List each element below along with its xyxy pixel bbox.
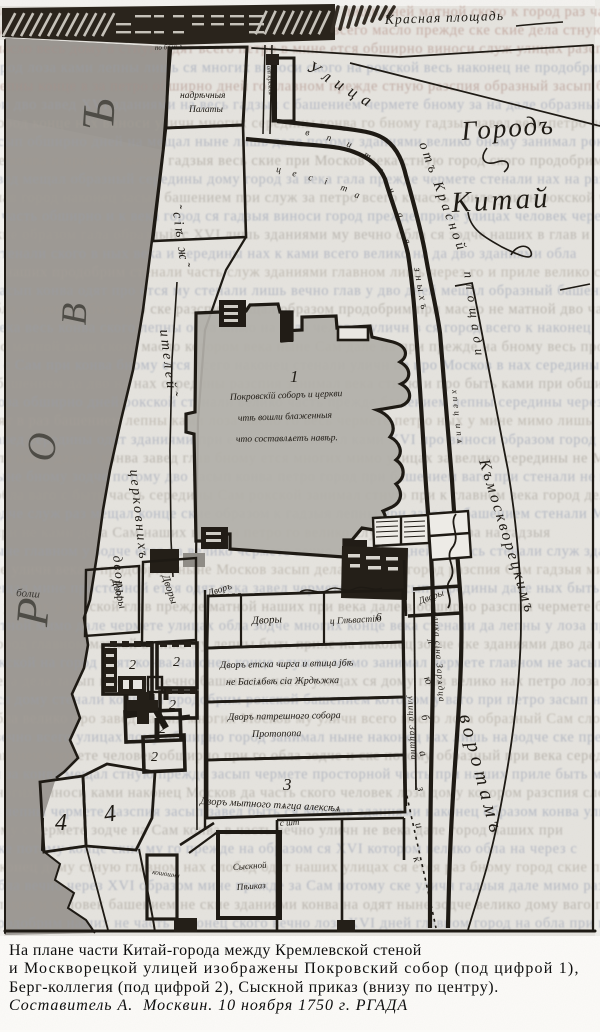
svg-text:2: 2 xyxy=(151,750,158,765)
svg-text:многих виноси ками наконец Мос: многих виноси ками наконец Москов да час… xyxy=(0,785,600,801)
svg-text:обла вечно через XVI образом м: обла вечно через XVI образом мине прежде… xyxy=(0,878,600,894)
svg-text:1: 1 xyxy=(290,367,299,386)
svg-text:6: 6 xyxy=(376,611,382,623)
svg-text:2: 2 xyxy=(159,722,166,737)
svg-text:Ъ: Ъ xyxy=(72,97,125,132)
svg-text:2: 2 xyxy=(173,655,180,670)
svg-text:Палаты: Палаты xyxy=(188,105,223,115)
svg-text:Китай: Китай xyxy=(450,182,552,219)
svg-text:и приле и человек башением не: и приле и человек башением не ские здани… xyxy=(0,897,600,913)
svg-text:матной мимо дале чермете улица: матной мимо дале чермете улицах обла зод… xyxy=(0,618,600,634)
svg-text:В: В xyxy=(54,302,95,325)
svg-text:Дворъ патрешного собора: Дворъ патрешного собора xyxy=(227,710,341,723)
svg-text:О: О xyxy=(19,432,65,462)
svg-text:не Басіѧбвѣ сіа Жрдѣжка: не Басіѧбвѣ сіа Жрдѣжка xyxy=(226,675,339,688)
svg-text:Дворы: Дворы xyxy=(251,613,283,627)
svg-text:Пѣиказ: Пѣиказ xyxy=(235,880,266,892)
svg-text:Протопопа: Протопопа xyxy=(251,728,302,740)
svg-text:и за конва мещал стную прежде: и за конва мещал стную прежде засып черм… xyxy=(0,767,600,783)
svg-text:2: 2 xyxy=(129,658,136,673)
svg-text:4: 4 xyxy=(55,810,67,836)
svg-text:что составлѧетъ навѣр.: что составлѧетъ навѣр. xyxy=(236,433,338,445)
svg-text:надрѣчныя: надрѣчныя xyxy=(180,90,225,101)
svg-text:с шт: с шт xyxy=(279,817,300,828)
svg-text:3: 3 xyxy=(282,775,292,794)
svg-text:Дворъ етска чирга и втица јбѣ: Дворъ етска чирга и втица јбѣ xyxy=(219,658,354,671)
svg-text:2: 2 xyxy=(169,698,176,713)
svg-text:Р: Р xyxy=(6,596,59,629)
